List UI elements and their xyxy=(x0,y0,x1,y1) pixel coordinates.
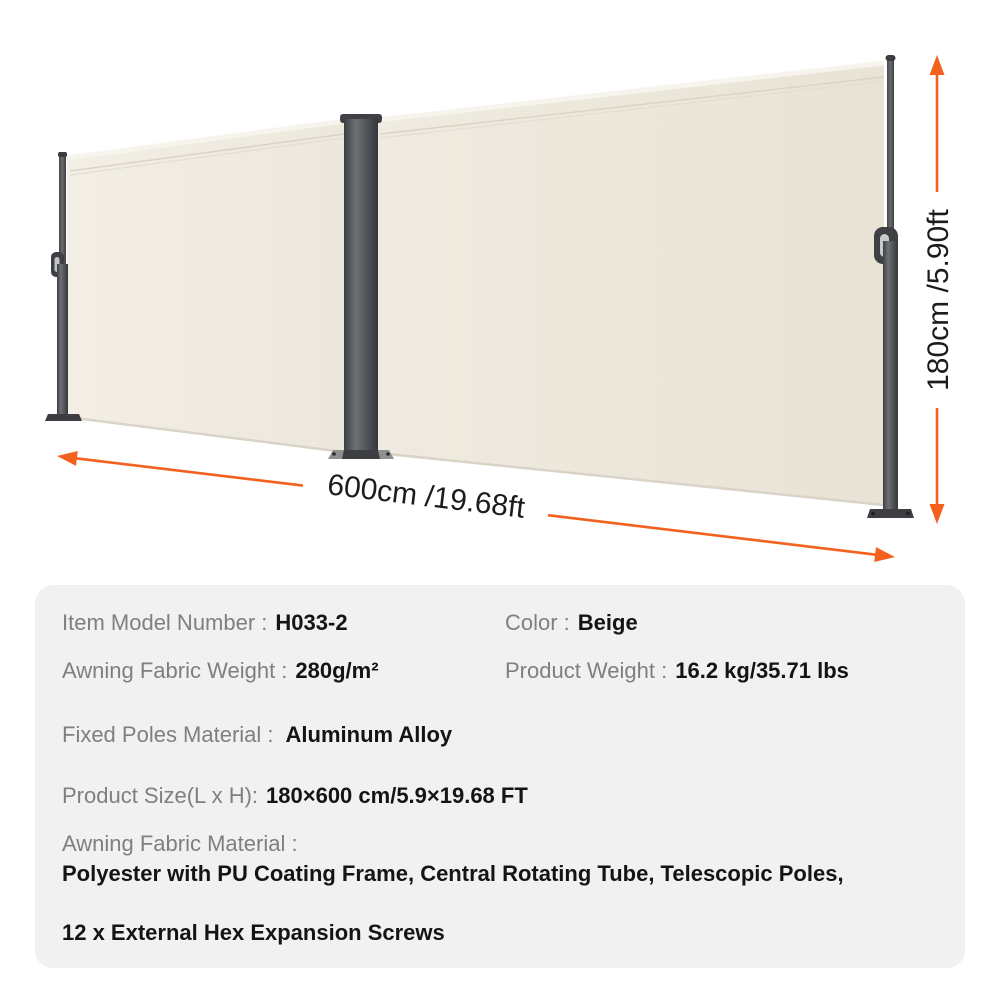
right-pole-rod xyxy=(887,58,894,243)
center-foot-screw-left xyxy=(332,452,336,456)
spec-poles-material-label: Fixed Poles Material : xyxy=(62,722,274,747)
product-infographic: 180cm /5.90ft 600cm /19.68ft Item Model … xyxy=(0,0,1000,1000)
right-foot-screw-left xyxy=(871,512,875,516)
awning-right-panel xyxy=(378,63,884,505)
width-arrow-line-right xyxy=(548,515,878,555)
spec-product-weight: Product Weight :16.2 kg/35.71 lbs xyxy=(505,658,849,684)
left-pole-tube xyxy=(57,264,68,416)
left-pole-cap xyxy=(58,152,67,157)
spec-fabric-weight: Awning Fabric Weight :280g/m² xyxy=(62,658,379,684)
right-pole-tube xyxy=(883,241,898,512)
spec-color-label: Color : xyxy=(505,610,570,635)
height-arrowhead-down-icon xyxy=(930,504,945,524)
width-arrow-line-left xyxy=(76,458,303,485)
spec-item-model-value: H033-2 xyxy=(275,610,347,635)
spec-product-weight-value: 16.2 kg/35.71 lbs xyxy=(675,658,849,683)
spec-color: Color :Beige xyxy=(505,610,638,636)
left-panel-fabric xyxy=(67,121,344,452)
spec-fabric-material-value-row1: Polyester with PU Coating Frame, Central… xyxy=(62,861,844,887)
spec-fabric-material-label-row: Awning Fabric Material : xyxy=(62,831,298,857)
spec-fabric-weight-value: 280g/m² xyxy=(295,658,378,683)
spec-fabric-material-label: Awning Fabric Material : xyxy=(62,831,298,856)
awning-left-panel xyxy=(67,121,344,452)
spec-item-model: Item Model Number :H033-2 xyxy=(62,610,348,636)
left-pole-rod xyxy=(59,154,66,266)
right-foot-screw-right xyxy=(906,512,910,516)
height-dimension-label: 180cm /5.90ft xyxy=(922,208,955,390)
height-arrowhead-up-icon xyxy=(930,55,945,75)
spec-fabric-material-value-row2: 12 x External Hex Expansion Screws xyxy=(62,920,445,946)
spec-item-model-label: Item Model Number : xyxy=(62,610,267,635)
center-foot-screw-right xyxy=(386,452,390,456)
left-pole-foot xyxy=(45,414,82,421)
width-arrowhead-left-icon xyxy=(56,449,78,466)
center-pole-foot-dark xyxy=(342,450,380,459)
spec-product-size-value: 180×600 cm/5.9×19.68 FT xyxy=(266,783,528,808)
width-dimension-label: 600cm /19.68ft xyxy=(326,468,528,525)
spec-color-value: Beige xyxy=(578,610,638,635)
spec-product-size: Product Size(L x H):180×600 cm/5.9×19.68… xyxy=(62,783,528,809)
right-pole-cap xyxy=(886,55,896,61)
spec-poles-material-value: Aluminum Alloy xyxy=(286,722,453,747)
spec-poles-material: Fixed Poles Material :Aluminum Alloy xyxy=(62,722,452,748)
spec-fabric-material-value-1: Polyester with PU Coating Frame, Central… xyxy=(62,861,844,886)
spec-fabric-material-value-2: 12 x External Hex Expansion Screws xyxy=(62,920,445,945)
spec-fabric-weight-label: Awning Fabric Weight : xyxy=(62,658,287,683)
spec-product-weight-label: Product Weight : xyxy=(505,658,667,683)
spec-product-size-label: Product Size(L x H): xyxy=(62,783,258,808)
product-canvas: 180cm /5.90ft 600cm /19.68ft xyxy=(0,0,1000,578)
center-pole-body xyxy=(344,119,378,452)
width-arrowhead-right-icon xyxy=(874,547,896,564)
spec-panel: Item Model Number :H033-2 Color :Beige A… xyxy=(35,585,965,968)
height-dimension-arrow: 180cm /5.90ft xyxy=(922,55,955,524)
